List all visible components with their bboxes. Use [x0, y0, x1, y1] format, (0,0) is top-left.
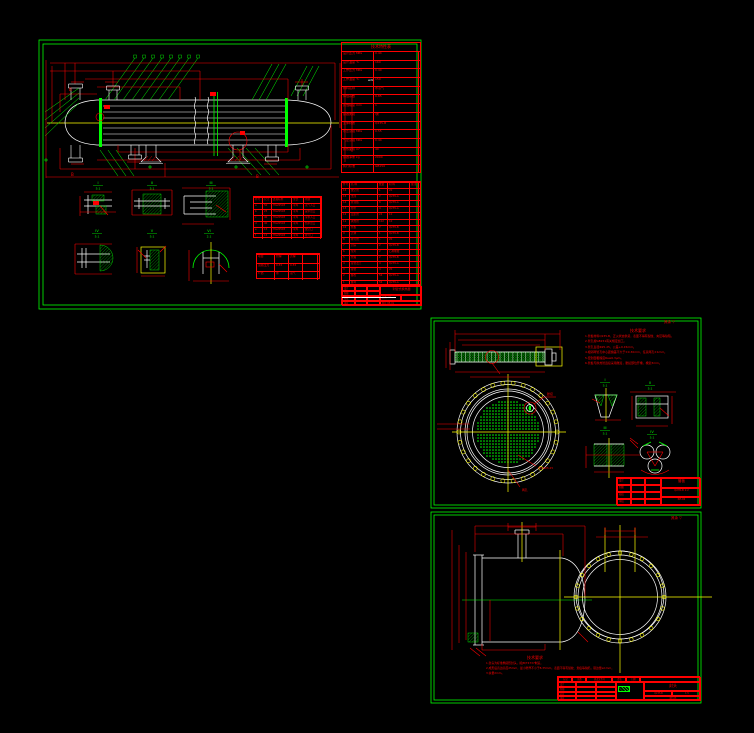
tube-hole-dot: [501, 428, 503, 430]
table-cell: HG20593: [272, 204, 292, 209]
tube-hole-dot: [489, 446, 491, 448]
tube-hole-dot: [528, 455, 530, 457]
detail-label: I: [97, 181, 98, 185]
tube-hole-dot: [495, 413, 497, 415]
tube-hole-dot: [525, 419, 527, 421]
title-block-cell: [631, 485, 645, 492]
table-cell: 凝水出口: [304, 210, 321, 215]
tube-hole-dot: [501, 446, 503, 448]
tube-hole-dot: [486, 440, 488, 442]
tube-hole-dot: [498, 452, 500, 454]
detail-label: I: [604, 378, 605, 382]
tube-hole-dot: [522, 419, 524, 421]
tube-hole-dot: [504, 413, 506, 415]
tube-hole-dot: [495, 410, 497, 412]
tube-hole-dot: [504, 446, 506, 448]
title-block-cell: [631, 478, 645, 485]
detail-view-4[interactable]: [75, 244, 113, 274]
technical-notes: 技术要求 1.封头为标准椭圆形封头，按JB/T4737制造。2.成形后直边高度2…: [486, 655, 626, 677]
leader-line: [45, 88, 79, 112]
tube-hole-dot: [531, 446, 533, 448]
table-cell: GB150: [374, 165, 419, 173]
tube-hole-dot: [492, 458, 494, 460]
detail-scale: 5:1: [150, 187, 155, 191]
tube-hole-dot: [519, 416, 521, 418]
table-row: 试验压力0.550.55: [257, 263, 319, 272]
dimension-lines: [46, 60, 352, 178]
title-block-assembly: 设计制图校核审核列管式换热器比例 1:5图号 RE-01: [341, 285, 421, 305]
tubesheet-face-view[interactable]: 胀接 HX-Φ25.25 两孔: [452, 374, 566, 492]
table-cell: [303, 255, 318, 263]
table-row: 4接管法兰4Q235-A: [342, 261, 420, 267]
table-cell: 25: [263, 210, 272, 215]
table-cell: 垫片: [350, 250, 378, 255]
detail-label: VI: [207, 229, 210, 233]
table-row: 件号名 称数量材 料备注: [342, 182, 420, 188]
tube-hole-dot: [525, 440, 527, 442]
tube-hole-dot: [513, 452, 515, 454]
dim-line: [534, 397, 544, 404]
tube-hole-dot: [492, 404, 494, 406]
table-cell: Q235-B: [388, 256, 410, 261]
tube-hole-dot: [489, 416, 491, 418]
table-cell: 折流板: [350, 201, 378, 206]
tube-hole-dot: [534, 419, 536, 421]
tube-hole-dot: [513, 449, 515, 451]
tube-hole-dot: [477, 428, 479, 430]
table-cell: 连接标准: [272, 198, 292, 203]
tube-hole-dot: [510, 422, 512, 424]
tube-hole-dot: [492, 413, 494, 415]
part-number-flag: [170, 55, 173, 58]
detail-view-1[interactable]: [80, 192, 116, 216]
tube-hole-dot: [492, 449, 494, 451]
tube-hole-dot: [486, 443, 488, 445]
tube-hole-dot: [513, 413, 515, 415]
tube-hole-dot: [501, 425, 503, 427]
table-cell: 7: [342, 244, 350, 249]
tube-hole-dot: [489, 437, 491, 439]
tube-pitch-detail[interactable]: [630, 438, 670, 475]
table-cell: 1: [378, 189, 388, 194]
table-cell: 接管法兰: [350, 262, 378, 267]
tube-hole-dot: [528, 428, 530, 430]
tube-hole-dot: [510, 413, 512, 415]
tube-hole-dot: [516, 410, 518, 412]
tube-hole-dot: [486, 425, 488, 427]
table-cell: 件号: [342, 183, 350, 188]
tube-hole-dot: [510, 458, 512, 460]
tube-hole-dot: [513, 416, 515, 418]
heat-exchanger-main-view[interactable]: B B B wdn: [44, 55, 374, 179]
tube-hole-dot: [537, 434, 539, 436]
table-cell: a: [254, 204, 263, 209]
table-cell: 型式: [292, 198, 304, 203]
tube-hole-dot: [528, 422, 530, 424]
tube-hole-dot: [504, 407, 506, 409]
tube-hole-dot: [534, 434, 536, 436]
tube-hole-dot: [483, 428, 485, 430]
tube-hole-dot: [522, 422, 524, 424]
bom-table: 件号名 称数量材 料备注16放空管12015支座2Q235-A14折流板8Q23…: [341, 181, 421, 285]
tube-hole-dot: [495, 449, 497, 451]
dim-line: [470, 648, 480, 656]
tube-hole-dot: [486, 428, 488, 430]
bolt-hole: [473, 394, 477, 398]
surface-finish-mark: 其余 ▽: [671, 516, 682, 521]
tube-hole-dot: [495, 452, 497, 454]
tube-hole-dot: [522, 452, 524, 454]
detail-label: II: [151, 181, 153, 185]
table-cell: 0.40: [374, 69, 419, 77]
tube-hole-dot: [519, 419, 521, 421]
weld-mark: [104, 105, 110, 109]
table-cell: 14: [342, 201, 350, 206]
table-row: a50HG20593平焊蒸气入口: [254, 203, 321, 209]
tube-hole-dot: [516, 416, 518, 418]
table-cell: 水压试验 MPa: [342, 130, 374, 138]
tube-hole-dot: [501, 461, 503, 463]
tube-hole-dot: [495, 416, 497, 418]
tube-hole-dot: [492, 440, 494, 442]
tube-hole-dot: [522, 437, 524, 439]
detail-scale: 5:1: [650, 436, 655, 440]
table-cell: 9: [342, 232, 350, 237]
tube-hole-dot: [486, 416, 488, 418]
tube-hole-dot: [513, 437, 515, 439]
tube-hole-dot: [489, 413, 491, 415]
table-cell: 3: [342, 268, 350, 273]
tube-hole-dot: [480, 419, 482, 421]
tube-hole-dot: [510, 446, 512, 448]
table-cell: Q235-A: [388, 195, 410, 200]
table-cell: 2: [378, 256, 388, 261]
tube-hole-dot: [525, 428, 527, 430]
table-cell: 150: [374, 78, 419, 86]
table-cell: [410, 207, 419, 212]
tube-hole-dot: [480, 425, 482, 427]
table-cell: 平焊: [292, 228, 304, 233]
tube-hole-dot: [519, 422, 521, 424]
tube-hole-dot: [483, 416, 485, 418]
tube-hole-dot: [510, 425, 512, 427]
tube-hole-dot: [516, 449, 518, 451]
bolt-hole: [596, 633, 600, 637]
table-cell: 封头: [350, 244, 378, 249]
tube-hole-dot: [534, 443, 536, 445]
cad-canvas[interactable]: B B B wdn: [0, 0, 754, 733]
tube-hole-dot: [525, 434, 527, 436]
tube-hole-dot: [513, 446, 515, 448]
table-row: 13拉杆4Q235-A: [342, 206, 420, 212]
tube-hole-dot: [483, 437, 485, 439]
table-cell: 执行标准: [342, 165, 374, 173]
tube-hole-dot: [513, 461, 515, 463]
bolt-hole: [473, 466, 477, 470]
detail-scale: 2:1: [207, 235, 212, 239]
detail-label: II: [649, 381, 651, 385]
tube-hole-dot: [489, 443, 491, 445]
table-cell: c: [254, 216, 263, 221]
tube-hole-dot: [492, 428, 494, 430]
tube-hole-dot: [510, 449, 512, 451]
tube-hole-dot: [522, 425, 524, 427]
tube-hole-dot: [492, 407, 494, 409]
table-row: 工作压力 MPa0.40: [342, 68, 420, 77]
tube-hole-dot: [504, 437, 506, 439]
table-cell: 15: [342, 195, 350, 200]
tube-hole-dot: [510, 428, 512, 430]
leader-line: [291, 66, 307, 96]
tube-hole-dot: [513, 434, 515, 436]
tube-hole-dot: [498, 425, 500, 427]
title-block-cell: [645, 485, 661, 492]
tube-hole-dot: [513, 440, 515, 442]
table-cell: 管程: [275, 255, 289, 263]
section-label: B: [256, 174, 259, 179]
break-line: [207, 97, 208, 144]
tube-hole-dot: [477, 440, 479, 442]
detail-views[interactable]: I5:1II5:1III5:1IV5:1V5:1VI2:1: [75, 181, 230, 284]
tube-hole-dot: [498, 428, 500, 430]
table-row: 水压试验 MPa0.55: [342, 129, 420, 138]
table-cell: 气密试验 MPa: [342, 139, 374, 147]
table-cell: 20: [388, 189, 410, 194]
tube-hole-dot: [498, 419, 500, 421]
table-cell: 壳程: [289, 255, 303, 263]
tube-hole-dot: [483, 410, 485, 412]
bolt-hole: [640, 633, 644, 637]
tube-hole-dot: [480, 440, 482, 442]
detail-view-2[interactable]: [132, 190, 172, 215]
table-row: 介质水蒸气: [257, 271, 319, 280]
tube-hole-dot: [489, 407, 491, 409]
table-cell: 容器类别: [342, 113, 374, 121]
weld-hatch: [468, 633, 478, 642]
tube-hole-dot: [504, 410, 506, 412]
table-cell: 蒸气: [289, 272, 303, 280]
table-cell: 1: [378, 232, 388, 237]
tube-hole-dot: [501, 410, 503, 412]
groove-detail[interactable]: [592, 388, 621, 422]
tube-hole-dot: [516, 452, 518, 454]
tube-hole-dot: [486, 410, 488, 412]
detail-scale: 5:1: [96, 187, 101, 191]
edge-section-detail[interactable]: [630, 392, 676, 426]
tube-hole-dot: [531, 422, 533, 424]
title-block-cell: RE-02: [661, 497, 701, 506]
tube-hole-dot: [528, 437, 530, 439]
tube-hole-dot: [498, 455, 500, 457]
detail-scale: 5:1: [648, 387, 653, 391]
tube-hole-dot: [519, 413, 521, 415]
table-cell: 介质: [257, 272, 275, 280]
table-cell: 4: [378, 268, 388, 273]
slot-section-detail[interactable]: [586, 438, 640, 478]
detail-label: V: [151, 229, 154, 233]
table-cell: 名 称: [350, 183, 378, 188]
tube-hole-dot: [495, 458, 497, 460]
weld-mark: [210, 92, 216, 96]
tube-hole-dot: [510, 404, 512, 406]
tech-table-title: 技术特性表: [342, 43, 420, 51]
part-number-flag: [161, 55, 164, 58]
head-side-view[interactable]: [462, 522, 592, 650]
tube-hole-dot: [525, 437, 527, 439]
tube-hole-dot: [495, 419, 497, 421]
tube-hole-dot: [489, 428, 491, 430]
dimension-lines: [452, 523, 648, 656]
table-cell: 放空口: [304, 228, 321, 233]
tube-hole-dot: [498, 461, 500, 463]
table-row: 执行标准GB150: [342, 164, 420, 173]
tube-hole-dot: [501, 419, 503, 421]
detail-scale: 5:1: [603, 432, 608, 436]
nozzles: [69, 84, 309, 164]
tube-hole-dot: [537, 428, 539, 430]
tube-hole-dot: [516, 434, 518, 436]
tube-hole-dot: [537, 422, 539, 424]
title-block-cell: [631, 492, 645, 499]
tube-hole-dot: [522, 416, 524, 418]
tube-hole-dot: [525, 413, 527, 415]
table-cell: [410, 226, 419, 231]
tube-hole-dot: [477, 422, 479, 424]
table-cell: 符号: [254, 198, 263, 203]
table-row: 工作温度 ℃150: [342, 77, 420, 86]
tube-hole-dot: [480, 428, 482, 430]
tube-hole-dot: [498, 401, 500, 403]
detail-label: III: [603, 426, 606, 430]
tube-hole-dot: [510, 443, 512, 445]
title-block-accent-line: [342, 297, 396, 298]
tube-hole-dot: [531, 425, 533, 427]
tube-hole-dot: [489, 434, 491, 436]
part-number-flag: [152, 55, 155, 58]
tube-hole-dot: [534, 422, 536, 424]
tube-hole-dot: [483, 452, 485, 454]
leader-line: [45, 98, 79, 128]
tube-hole-dot: [519, 407, 521, 409]
baffle-ticks: [457, 353, 543, 362]
tube-hole-dot: [501, 437, 503, 439]
note-line: 3.余量2mm。: [486, 671, 626, 676]
tube-hole-dot: [522, 404, 524, 406]
table-cell: 平焊: [292, 210, 304, 215]
tube-hole-dot: [510, 419, 512, 421]
tube-hole-dot: [498, 416, 500, 418]
detail-view-3[interactable]: [182, 188, 230, 224]
title-block-cell: 校核: [617, 492, 631, 499]
table-cell: e: [254, 228, 263, 233]
part-number-flag: [188, 55, 191, 58]
table-cell: 10: [388, 213, 410, 218]
table-cell: 平焊: [292, 204, 304, 209]
tube-hole-dot: [531, 449, 533, 451]
table-cell: [410, 274, 419, 279]
table-cell: 10: [342, 226, 350, 231]
table-cell: 12: [342, 213, 350, 218]
tube-hole-dot: [513, 458, 515, 460]
table-cell: 8: [342, 238, 350, 243]
tube-hole-dot: [516, 407, 518, 409]
table-row: 7封头2Q235-B: [342, 243, 420, 249]
tube-hole-dot: [531, 419, 533, 421]
tube-hole-dot: [504, 440, 506, 442]
tube-hole-dot: [504, 443, 506, 445]
tube-hole-dot: [504, 458, 506, 460]
table-cell: 腐蚀裕度 mm: [342, 104, 374, 112]
table-cell: 20: [388, 268, 410, 273]
tube-hole-dot: [480, 434, 482, 436]
tube-hole-dot: [528, 440, 530, 442]
bolt-hole: [546, 401, 550, 405]
tube-hole-dot: [501, 422, 503, 424]
table-cell: Ⅰ类: [374, 113, 419, 121]
tube-hole-dot: [486, 407, 488, 409]
table-cell: 0.55: [275, 264, 289, 272]
note-line: 2.成形后直边高度25mm，最小壁厚不小于8.35mm，表面不得有裂纹、划痕等缺…: [486, 666, 626, 671]
title-block-cell: 封头: [644, 682, 701, 691]
tube-hole-dot: [519, 410, 521, 412]
tube-hole-dot: [516, 455, 518, 457]
table-cell: 15: [263, 228, 272, 233]
tube-hole-dot: [528, 443, 530, 445]
tube-hole-dot: [513, 455, 515, 457]
tube-hole-dot: [483, 449, 485, 451]
tube-hole-dot: [513, 404, 515, 406]
part-number-flag: [179, 55, 182, 58]
tube-hole-dot: [492, 452, 494, 454]
tube-hole-dot: [492, 410, 494, 412]
tube-hole-dot: [498, 437, 500, 439]
table-cell: 56: [378, 274, 388, 279]
tubesheet-detail-views[interactable]: I5:1II5:1III5:1IV5:1: [586, 378, 676, 478]
tube-hole-dot: [516, 404, 518, 406]
tube-hole-dot: [495, 434, 497, 436]
table-cell: 水蒸气: [374, 87, 419, 95]
table-row: 9壳体1Q235-B: [342, 231, 420, 237]
tube-hole-dot: [513, 401, 515, 403]
tube-hole-dot: [486, 422, 488, 424]
tube-hole-dot: [501, 440, 503, 442]
table-cell: Q235-A: [388, 201, 410, 206]
material-hatch-cell: [618, 686, 630, 692]
tube-hole-dot: [486, 449, 488, 451]
table-cell: Q235-B: [374, 122, 419, 130]
tech-spec-table: 技术特性表 设计压力 MPa0.44设计温度 ℃160工作压力 MPa0.40工…: [341, 42, 421, 173]
tube-hole-dot: [513, 425, 515, 427]
detail-scale: 5:1: [150, 235, 155, 239]
detail-view-5[interactable]: [137, 246, 166, 276]
tube-hole-dot: [531, 437, 533, 439]
tube-hole-dot: [513, 428, 515, 430]
tube-hole-dot: [486, 434, 488, 436]
detail-view-6[interactable]: [189, 242, 229, 284]
left-head: [65, 100, 97, 145]
table-cell: 11: [342, 220, 350, 225]
title-block-cell: [631, 499, 645, 506]
title-block-head: 标记处数更改文件号签名日期设计制图校核审核封头Q235-B1:5RE-03: [557, 676, 700, 700]
tube-hole-dot: [525, 416, 527, 418]
table-cell: 4: [378, 262, 388, 267]
head-face-view[interactable]: [564, 525, 712, 673]
tube-hole-dot: [525, 425, 527, 427]
table-row: 换热面积 m²40: [342, 147, 420, 156]
tube-hole-dot: [480, 446, 482, 448]
tube-hole-dot: [501, 434, 503, 436]
table-cell: 物料名称: [342, 87, 374, 95]
